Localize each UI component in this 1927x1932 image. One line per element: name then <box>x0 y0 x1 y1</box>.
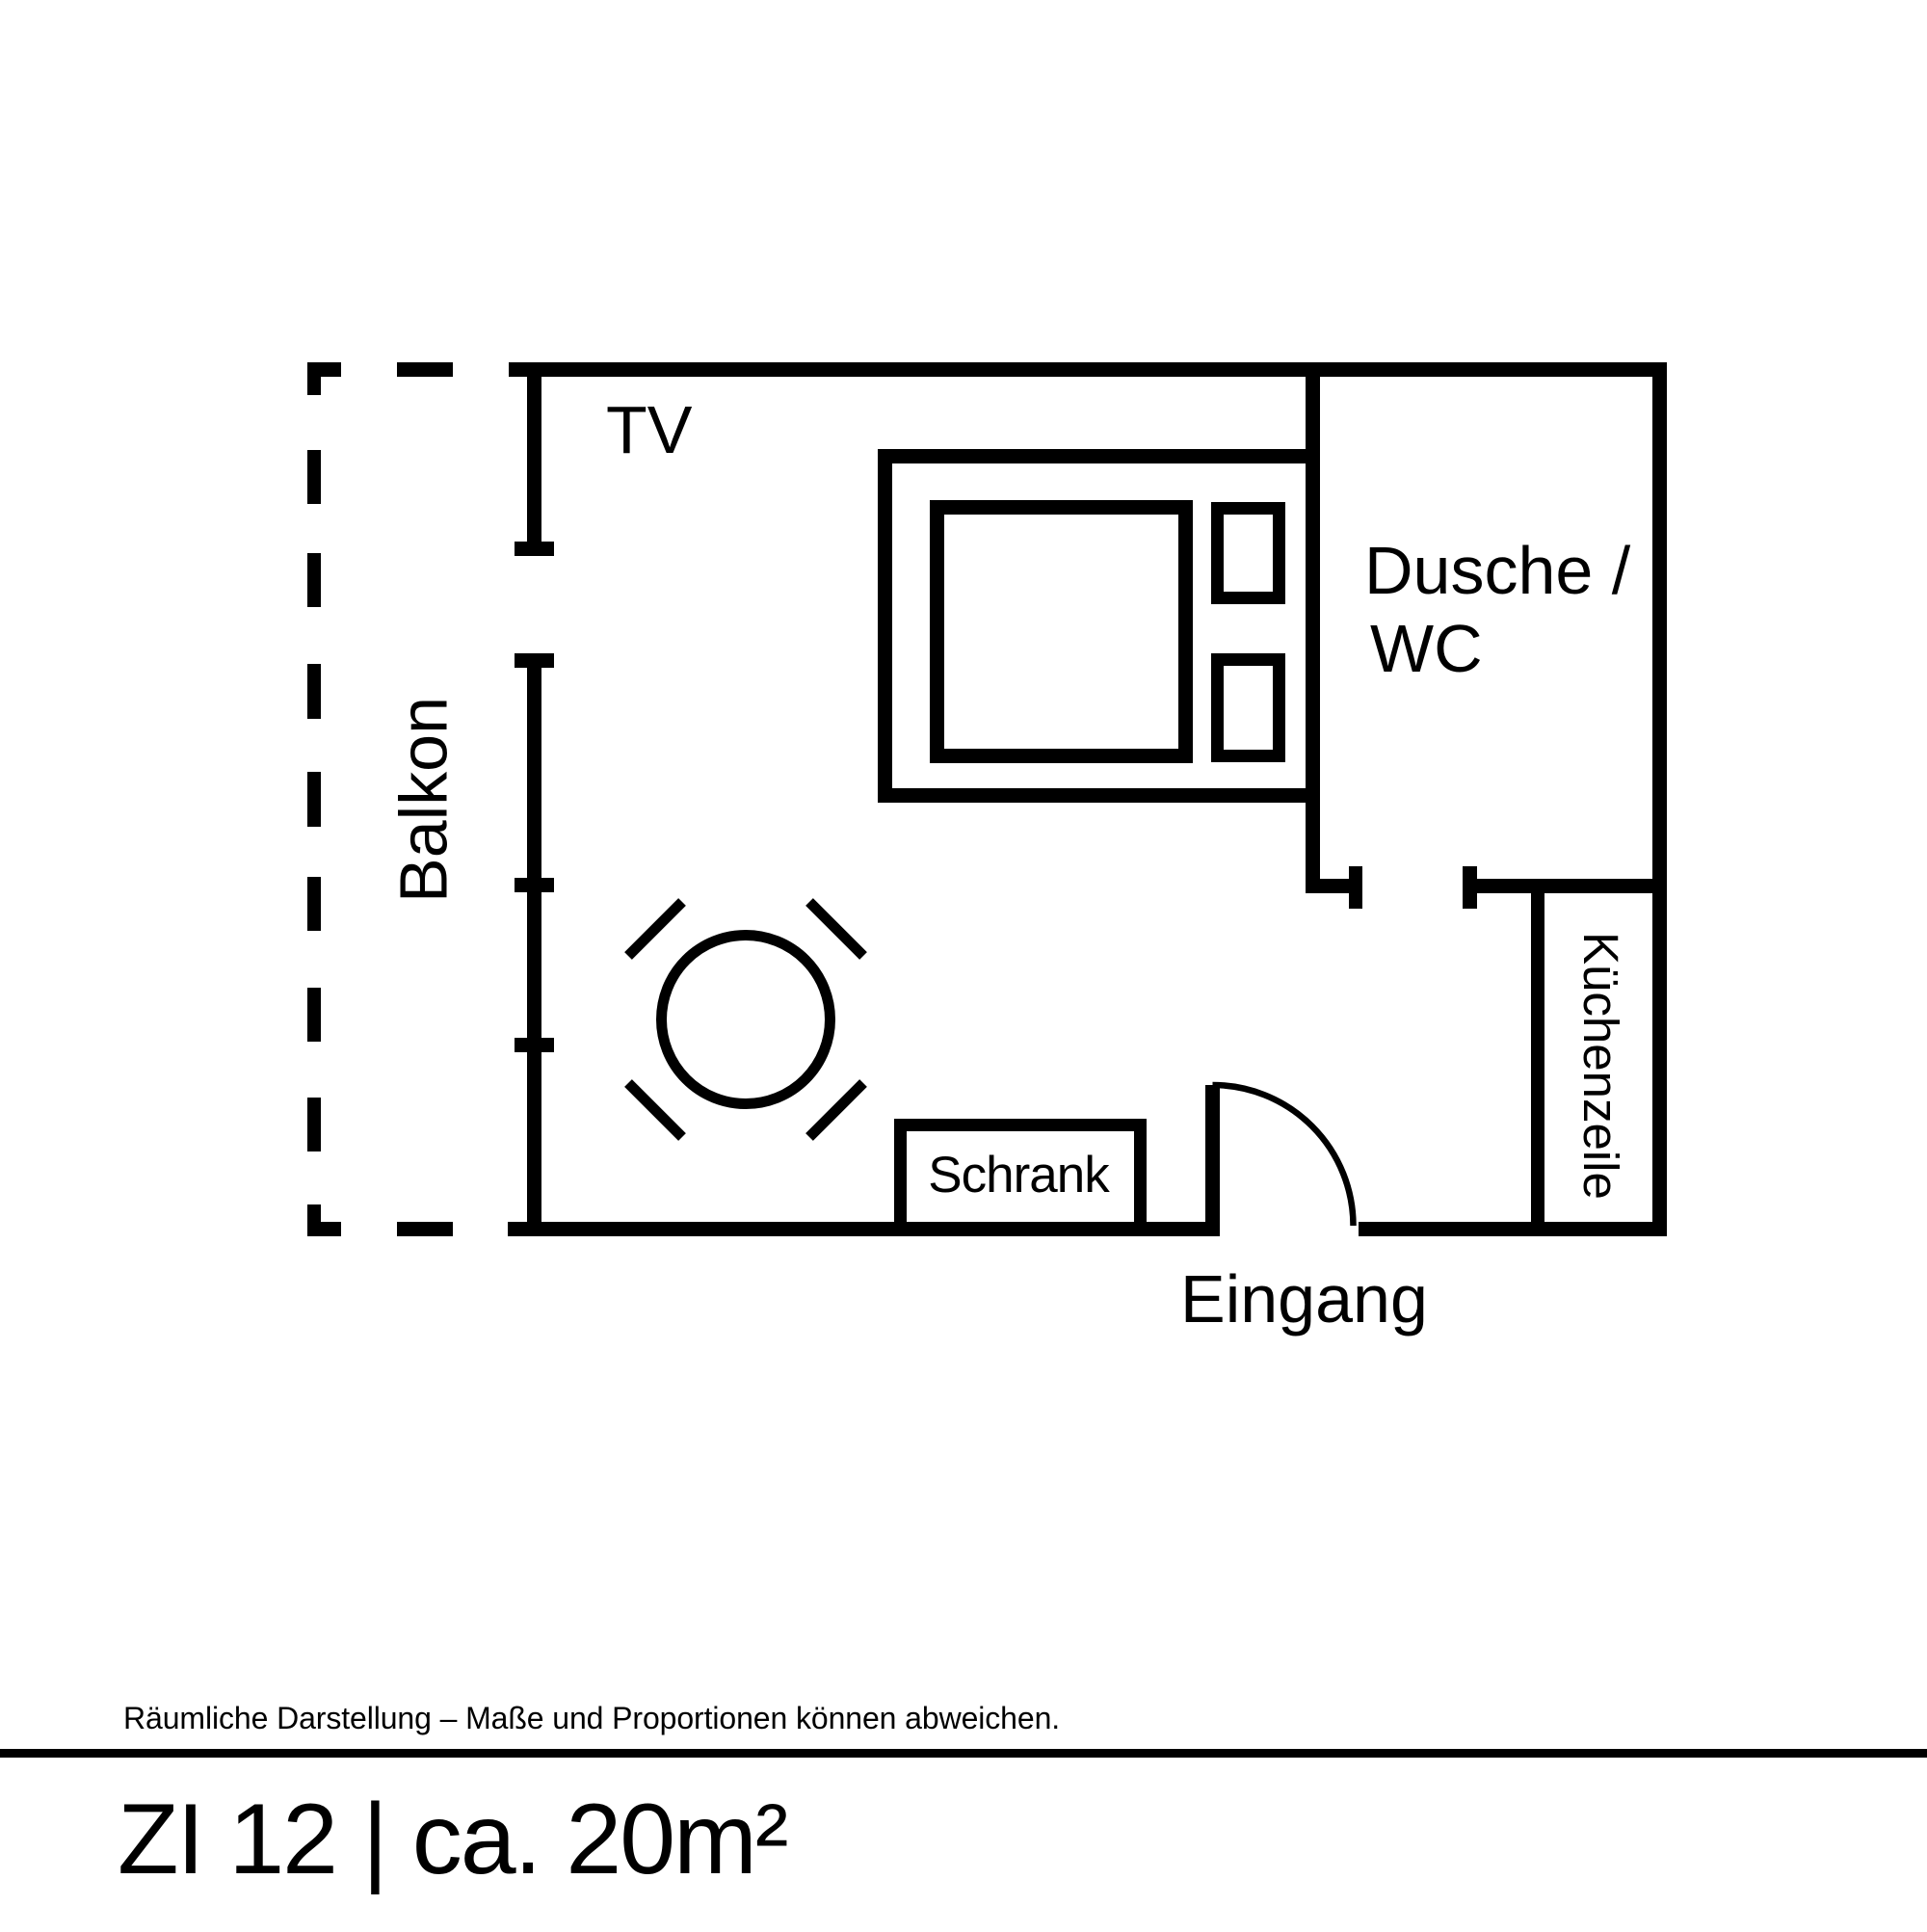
svg-text:WC: WC <box>1370 611 1483 686</box>
svg-text:Küchenzeile: Küchenzeile <box>1573 932 1628 1200</box>
svg-text:Schrank: Schrank <box>928 1147 1110 1204</box>
svg-text:Dusche /: Dusche / <box>1364 533 1631 608</box>
svg-text:Räumliche Darstellung – Maße u: Räumliche Darstellung – Maße und Proport… <box>123 1701 1060 1735</box>
svg-text:Eingang: Eingang <box>1180 1261 1428 1337</box>
svg-text:TV: TV <box>606 392 693 467</box>
svg-text:ZI 12 | ca. 20m²: ZI 12 | ca. 20m² <box>118 1784 787 1895</box>
svg-text:Balkon: Balkon <box>386 697 462 903</box>
